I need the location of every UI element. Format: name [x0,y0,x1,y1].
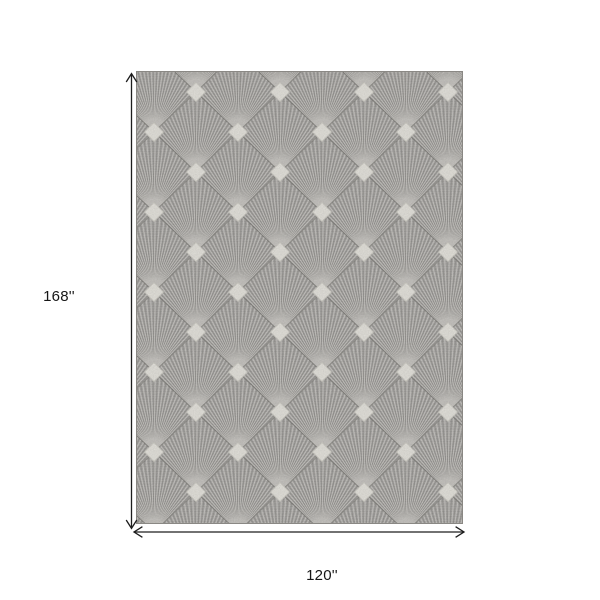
height-dimension-label: 168'' [30,288,88,305]
rug-image [136,71,463,524]
width-arrow [134,527,464,538]
width-dimension-label: 120'' [293,567,351,584]
rug-pattern [137,72,462,523]
product-dimension-diagram: 168'' 120'' [0,0,600,600]
